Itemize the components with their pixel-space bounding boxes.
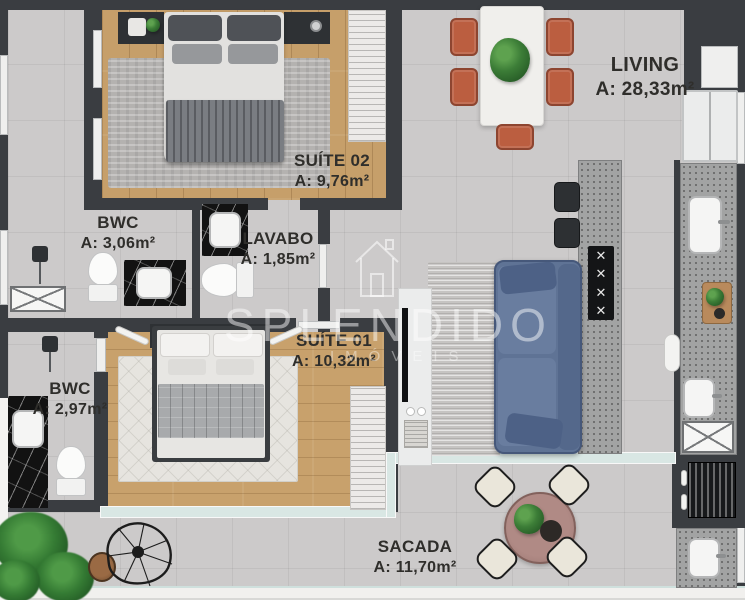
window-right-upper [737,92,745,164]
label-lavabo: LAVABO A: 1,85m² [228,228,328,271]
suite02-window-b [93,118,102,180]
bwc2-area: A: 2,97m² [18,400,122,421]
suite02-pillow-dark-right [227,15,281,41]
dining-centerpiece-plant [490,38,530,82]
glass-connector [386,452,396,518]
balcony-fern-2 [36,552,94,600]
suite02-knit-blanket [166,100,284,162]
bwc2-name: BWC [49,379,91,398]
balcony-sink-faucet [716,554,726,558]
balcony-sink [688,538,720,578]
watermark-brand: SPLENDIDO [224,298,553,352]
bwc1-shower-stem [39,262,41,284]
label-sacada: SACADA A: 11,70m² [355,536,475,579]
pepper-mill [714,308,725,319]
suite02-area: A: 9,76m² [272,172,392,193]
suite01-cushion-right [216,359,254,375]
kitchen-sink-1 [688,196,722,254]
window-left-mid [0,230,8,305]
cooktop: ✕✕✕✕ [588,246,614,320]
wall-top [0,0,745,10]
bwc1-area: A: 3,06m² [68,234,168,255]
bwc1-toilet-bowl [88,252,118,286]
nightstand-plant [146,18,160,32]
label-bwc2: BWC A: 2,97m² [18,378,122,421]
nightstand-tray [128,18,146,36]
dining-chair-right-2 [546,68,574,106]
sink-1-faucet [718,220,730,224]
window-left-upper [0,55,8,135]
island-stool-1 [554,182,580,212]
window-right-lower [737,527,745,583]
washer-tank [682,421,734,453]
bwc1-toilet-tank [88,284,118,302]
suite02-wardrobe [348,10,386,142]
dining-chair-right-1 [546,18,574,56]
bwc2-shower-head [42,336,58,352]
label-bwc1: BWC A: 3,06m² [68,212,168,255]
suite01-quilt [158,384,264,438]
tv-decor-vase-1 [406,407,415,416]
tv-decor-basket [404,420,428,448]
suite02-pillow-gray-left [172,44,222,64]
suite02-nightstand-right [284,12,330,44]
dining-chair-bottom [496,124,534,150]
sofa-pillow-top [499,261,558,295]
suite02-pillow-dark-left [168,15,222,41]
label-suite02: SUÍTE 02 A: 9,76m² [272,150,392,193]
balcony-railing [8,586,745,600]
sacada-name: SACADA [378,537,453,556]
suite01-wardrobe [350,386,386,510]
bwc2-shower-stem [49,352,51,372]
lavabo-area: A: 1,85m² [228,250,328,271]
bwc2-toilet-bowl [56,446,86,480]
tv-decor-vase-2 [417,407,426,416]
bwc1-name: BWC [97,213,139,232]
sacada-area: A: 11,70m² [355,558,475,579]
living-area: A: 28,33m² [575,78,715,103]
label-living: LIVING A: 28,33m² [575,52,715,103]
paper-towel-holder [664,334,680,372]
grill-handle-2 [681,494,687,510]
dining-chair-left-2 [450,68,478,106]
wall-bwc1-lavabo [192,210,200,320]
island-stool-2 [554,218,580,248]
lavabo-name: LAVABO [242,229,313,248]
balcony-table-tray [540,520,562,542]
watermark-tagline: IMÓVEIS [330,348,470,365]
suite02-window-a [93,30,102,88]
bwc1-sink [136,267,172,299]
watermark-house-icon [352,236,402,300]
suite02-name: SUÍTE 02 [294,151,370,170]
sink-2-faucet [712,394,722,398]
bwc1-shower-head [32,246,48,262]
barbecue-grill [688,462,736,518]
floor-plan: ✕✕✕✕ [0,0,745,600]
nightstand-mirror [310,20,322,32]
decor-fan [98,516,180,588]
suite02-pillow-gray-right [228,44,278,64]
suite01-cushion-left [168,359,206,375]
wall-mid-row-b [300,198,402,210]
kitchen-sink-2 [683,378,715,418]
bwc1-shower-tray [10,286,66,312]
living-name: LIVING [611,54,679,76]
grill-handle-1 [681,470,687,486]
dining-chair-left-1 [450,18,478,56]
bwc2-door-leaf [96,338,106,372]
counter-herb-plant [706,288,724,306]
bwc2-toilet-tank [56,478,86,496]
suite01-pillow-left [160,333,210,357]
